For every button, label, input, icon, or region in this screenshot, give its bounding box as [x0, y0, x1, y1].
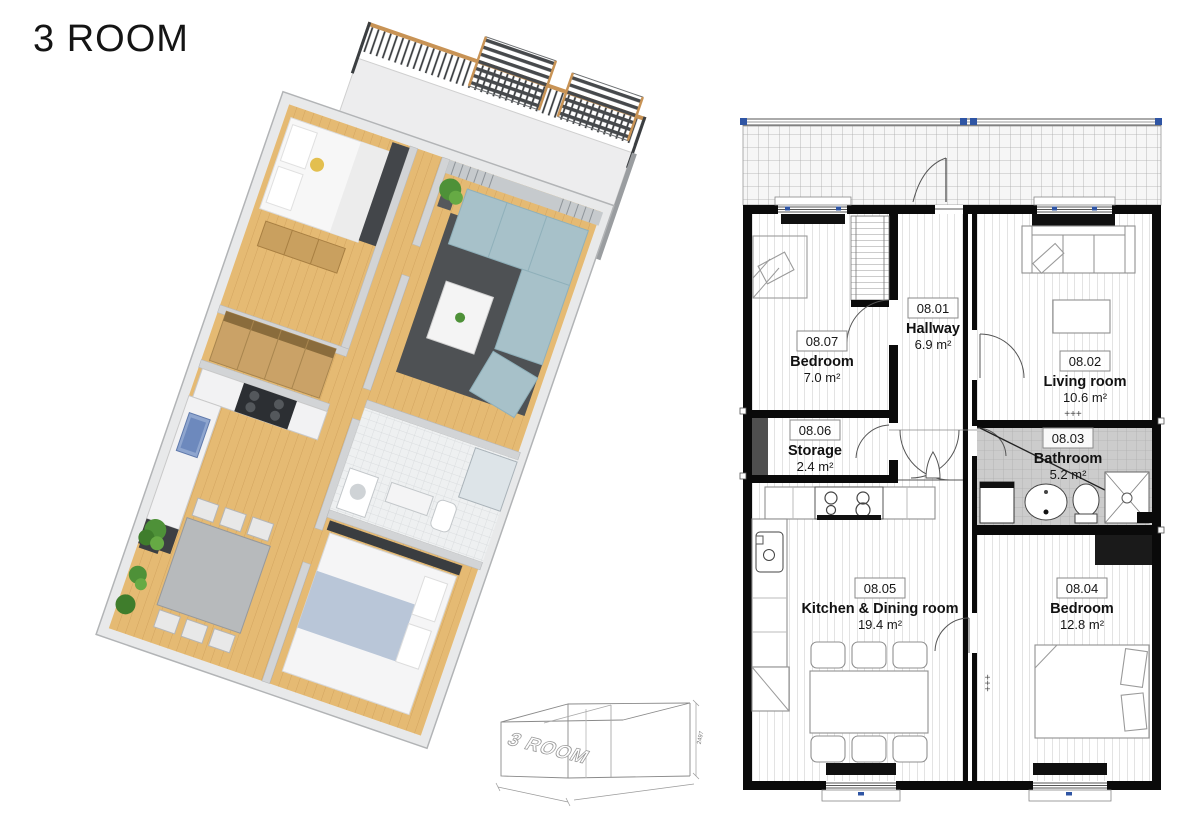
railing-handle	[740, 118, 747, 125]
room-area: 2.4 m²	[797, 459, 835, 474]
room-code: 08.01	[917, 301, 950, 316]
room-code: 08.04	[1066, 581, 1099, 596]
wardrobe-2d	[1095, 535, 1152, 565]
railing-handle	[970, 118, 977, 125]
divider-wall	[963, 214, 977, 781]
room-name: Kitchen & Dining room	[801, 601, 958, 617]
height-dimension: 2497	[697, 730, 706, 745]
bed-2d	[1035, 645, 1149, 738]
room-area: 5.2 m²	[1050, 467, 1088, 482]
dining-table-2d	[810, 671, 928, 733]
wireframe-label: 3 ROOM	[503, 729, 593, 768]
toilet	[1073, 484, 1099, 516]
room-area: 10.6 m²	[1063, 390, 1108, 405]
terrace	[740, 118, 1162, 205]
bathroom-sink	[1025, 484, 1067, 520]
room-code: 08.02	[1069, 354, 1102, 369]
room-area: 7.0 m²	[804, 370, 842, 385]
room-code: 08.06	[799, 423, 832, 438]
shaft	[750, 413, 768, 478]
kitchen-sink	[756, 532, 783, 572]
stove	[815, 487, 883, 519]
room-name: Living room	[1044, 374, 1127, 390]
room-name: Hallway	[906, 321, 960, 337]
wireframe-sketch: 3 ROOM 2497	[488, 692, 723, 817]
floor-plan-sheet: 3 ROOM	[0, 0, 1200, 840]
room-area: 19.4 m²	[858, 617, 903, 632]
room-name: Bedroom	[790, 354, 854, 370]
stairs-2d	[851, 216, 889, 307]
radiator-marks: +++	[981, 674, 992, 692]
room-name: Storage	[788, 443, 842, 459]
room-code: 08.03	[1052, 431, 1085, 446]
room-code: 08.07	[806, 334, 839, 349]
room-name: Bathroom	[1034, 451, 1102, 467]
dining-set	[810, 642, 928, 762]
coffee-table-2d	[1053, 300, 1110, 333]
room-area: 6.9 m²	[915, 337, 953, 352]
radiator-marks: +++	[1064, 409, 1082, 420]
room-name: Bedroom	[1050, 601, 1114, 617]
washing-machine	[980, 482, 1014, 523]
apartment-3d-model	[96, 15, 657, 750]
railing-handle	[960, 118, 967, 125]
sofa-2d	[1022, 226, 1135, 273]
railing-handle	[1155, 118, 1162, 125]
plan-2d: +++ +++	[737, 108, 1167, 808]
room-code: 08.05	[864, 581, 897, 596]
room-area: 12.8 m²	[1060, 617, 1105, 632]
